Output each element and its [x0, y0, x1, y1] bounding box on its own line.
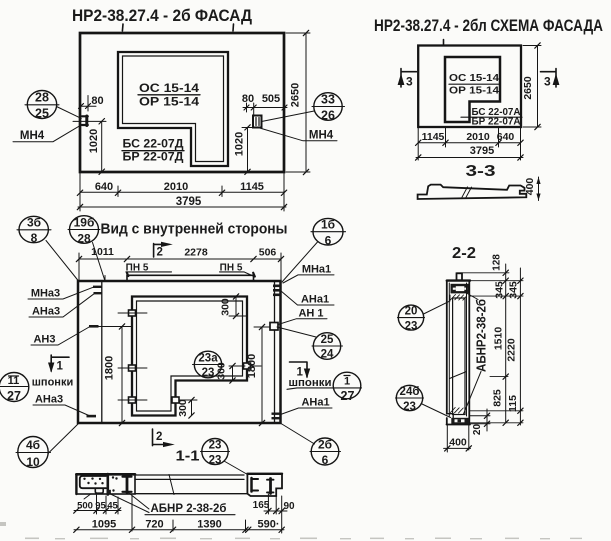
svg-text:2650: 2650 — [290, 83, 302, 107]
svg-text:2650: 2650 — [522, 76, 534, 100]
svg-text:95: 95 — [95, 501, 106, 512]
svg-text:80: 80 — [242, 93, 254, 105]
svg-text:2б: 2б — [318, 438, 332, 452]
svg-text:1145: 1145 — [240, 181, 264, 193]
svg-text:19б: 19б — [74, 216, 95, 230]
svg-text:1145: 1145 — [422, 131, 445, 143]
svg-text:6: 6 — [325, 234, 332, 248]
svg-text:АН3: АН3 — [33, 334, 55, 346]
svg-text:26: 26 — [321, 109, 335, 123]
svg-text:АБНР 2-38-2б: АБНР 2-38-2б — [151, 501, 227, 515]
svg-text:23: 23 — [209, 455, 222, 467]
svg-text:8: 8 — [31, 231, 38, 245]
svg-text:1: 1 — [57, 361, 64, 373]
svg-text:2: 2 — [157, 247, 163, 259]
svg-text:27: 27 — [341, 389, 355, 403]
svg-text:3795: 3795 — [176, 196, 202, 208]
svg-text:1510: 1510 — [493, 327, 505, 351]
svg-text:МН4: МН4 — [20, 130, 45, 142]
svg-text:АНа3: АНа3 — [35, 394, 63, 406]
svg-text:АБНР2-38-2б: АБНР2-38-2б — [475, 299, 489, 372]
svg-text:165: 165 — [253, 500, 270, 511]
svg-text:3: 3 — [406, 75, 413, 89]
svg-text:3б: 3б — [27, 216, 41, 230]
svg-text:АН 1: АН 1 — [298, 308, 323, 320]
svg-text:1011: 1011 — [91, 246, 114, 258]
svg-text:ОР 15-14: ОР 15-14 — [449, 85, 499, 97]
svg-text:1020: 1020 — [234, 132, 246, 156]
svg-text:1020: 1020 — [88, 129, 100, 153]
svg-text:300: 300 — [220, 298, 232, 316]
svg-text:90: 90 — [283, 501, 295, 512]
svg-text:ОС 15-14: ОС 15-14 — [139, 81, 199, 95]
svg-text:МНа3: МНа3 — [31, 288, 60, 300]
svg-text:24: 24 — [321, 349, 334, 361]
svg-text:25: 25 — [321, 334, 334, 346]
svg-text:33: 33 — [321, 93, 335, 107]
svg-text:БР 22-07Д: БР 22-07Д — [123, 152, 184, 164]
svg-text:МНа1: МНа1 — [302, 264, 331, 276]
svg-text:3795: 3795 — [470, 145, 494, 157]
svg-text:ОР 15-14: ОР 15-14 — [139, 95, 199, 109]
svg-text:АНа1: АНа1 — [301, 397, 329, 409]
svg-text:1390: 1390 — [197, 519, 221, 531]
svg-text:23: 23 — [403, 401, 416, 413]
svg-text:Вид с внутренней стороны: Вид с внутренней стороны — [101, 221, 288, 238]
svg-text:2-2: 2-2 — [452, 245, 476, 262]
svg-text:МН4: МН4 — [309, 130, 334, 142]
svg-text:400: 400 — [524, 178, 536, 196]
svg-text:10: 10 — [26, 455, 40, 469]
svg-text:45: 45 — [107, 501, 118, 512]
svg-text:НР2-38.27.4 - 2бл СХЕМА ФАСАДА: НР2-38.27.4 - 2бл СХЕМА ФАСАДА — [374, 17, 603, 35]
svg-text:3: 3 — [544, 75, 551, 89]
svg-text:500: 500 — [77, 501, 93, 512]
svg-text:80: 80 — [91, 95, 103, 107]
svg-text:28: 28 — [77, 232, 91, 246]
svg-text:2: 2 — [156, 431, 162, 443]
svg-text:ОС 15-14: ОС 15-14 — [449, 72, 499, 84]
svg-text:2010: 2010 — [164, 181, 188, 193]
svg-text:27: 27 — [7, 389, 21, 403]
svg-text:23а: 23а — [198, 353, 218, 365]
svg-text:128: 128 — [492, 254, 503, 271]
svg-text:400: 400 — [449, 436, 467, 448]
svg-text:НР2-38.27.4 - 2б ФАСАД: НР2-38.27.4 - 2б ФАСАД — [72, 6, 252, 25]
svg-text:1: 1 — [344, 376, 350, 388]
svg-text:шпонки: шпонки — [289, 377, 332, 389]
svg-text:2278: 2278 — [184, 247, 208, 259]
svg-text:505: 505 — [262, 93, 280, 105]
svg-text:3-3: 3-3 — [466, 163, 496, 180]
svg-text:БС 22-07Д: БС 22-07Д — [123, 139, 184, 151]
svg-text:АНа3: АНа3 — [32, 306, 60, 318]
svg-text:2220: 2220 — [506, 338, 518, 362]
svg-text:640: 640 — [497, 131, 515, 143]
svg-text:24б: 24б — [400, 386, 420, 398]
svg-text:АНа1: АНа1 — [301, 294, 329, 306]
svg-text:28: 28 — [35, 91, 49, 105]
svg-text:23: 23 — [202, 367, 215, 379]
svg-text:шпонки: шпонки — [32, 377, 73, 389]
svg-text:23: 23 — [405, 321, 418, 333]
svg-text:25: 25 — [35, 107, 49, 121]
svg-text:2010: 2010 — [466, 131, 490, 143]
svg-text:23: 23 — [209, 440, 222, 452]
svg-text:506: 506 — [259, 247, 277, 259]
svg-text:20: 20 — [405, 306, 418, 318]
svg-text:20: 20 — [472, 424, 483, 436]
svg-text:115: 115 — [507, 395, 519, 412]
svg-text:6: 6 — [322, 453, 329, 467]
svg-text:1800: 1800 — [104, 356, 116, 380]
svg-text:1095: 1095 — [92, 519, 116, 531]
svg-text:1-1: 1-1 — [176, 448, 200, 465]
svg-text:640: 640 — [95, 181, 113, 193]
svg-text:1б: 1б — [321, 218, 335, 232]
svg-text:4б: 4б — [26, 438, 40, 452]
svg-text:300: 300 — [177, 399, 189, 417]
svg-text:590·: 590· — [257, 519, 279, 531]
svg-text:825: 825 — [492, 389, 504, 407]
svg-text:720: 720 — [145, 519, 163, 531]
svg-text:11: 11 — [8, 375, 20, 387]
svg-text:БР 22-07А: БР 22-07А — [472, 117, 521, 128]
